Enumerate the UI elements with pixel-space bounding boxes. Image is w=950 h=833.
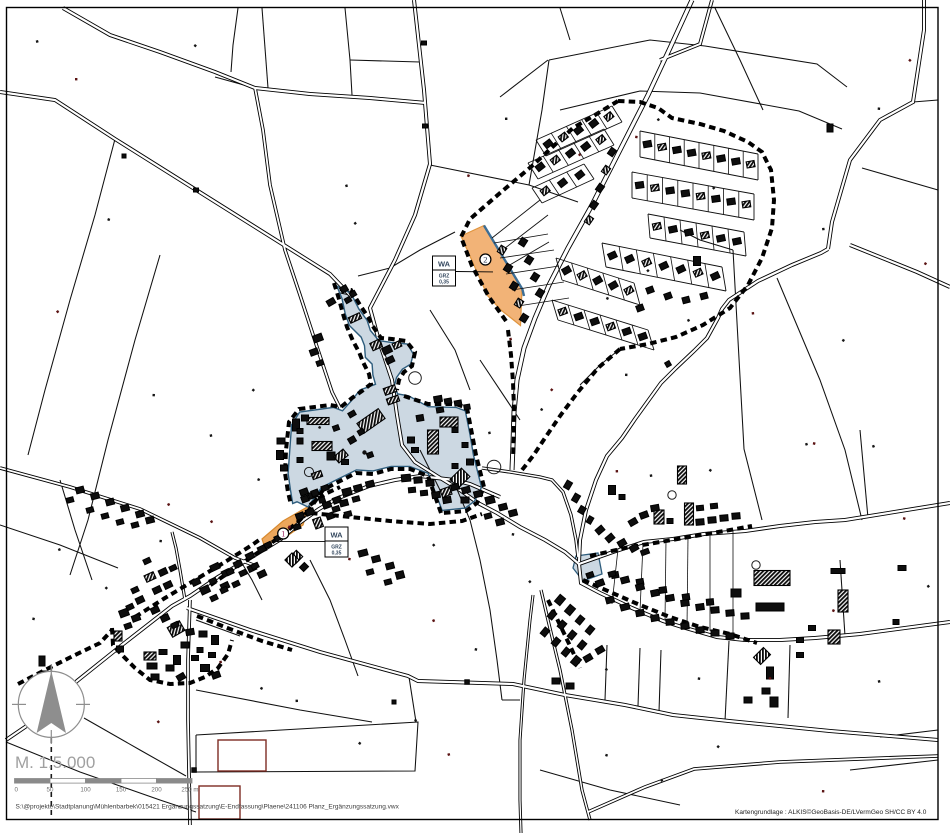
- svg-text:WA: WA: [438, 260, 451, 269]
- svg-text:1: 1: [281, 528, 285, 538]
- svg-text:0,35: 0,35: [332, 551, 342, 557]
- svg-text:150: 150: [116, 787, 127, 794]
- svg-text:2: 2: [483, 254, 487, 264]
- svg-text:50: 50: [47, 787, 54, 794]
- svg-text:100: 100: [80, 787, 91, 794]
- svg-text:S:\@projekte\Stadtplanung\Mühl: S:\@projekte\Stadtplanung\Mühlenbarbek\0…: [16, 804, 400, 811]
- svg-text:WA: WA: [330, 531, 343, 540]
- svg-text:Kartengrundlage : ALKIS©GeoBas: Kartengrundlage : ALKIS©GeoBasis-DE/LVer…: [735, 808, 927, 816]
- svg-text:M. 1:5.000: M. 1:5.000: [15, 753, 95, 772]
- svg-text:0: 0: [15, 787, 19, 794]
- svg-text:250 m: 250 m: [181, 787, 198, 794]
- svg-text:0,35: 0,35: [439, 280, 449, 286]
- svg-text:200: 200: [151, 787, 162, 794]
